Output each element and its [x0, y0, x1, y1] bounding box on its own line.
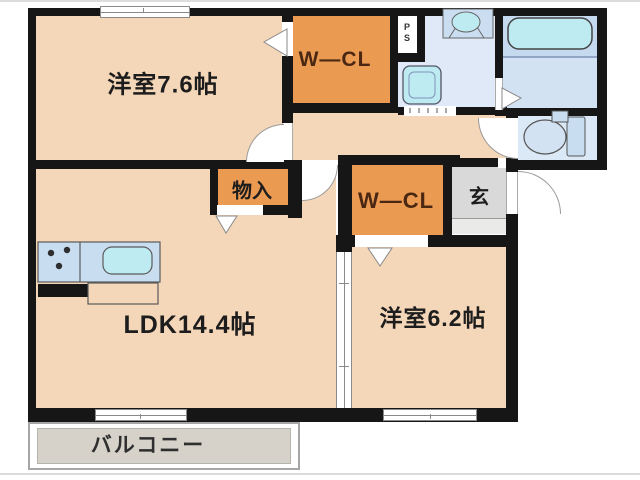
- bedroom2-window: [383, 409, 477, 421]
- wcl2-opening: [355, 235, 428, 247]
- window-midline: [101, 12, 189, 13]
- storage-opening: [217, 205, 263, 215]
- wall-wcl2-top: [338, 155, 460, 165]
- bedroom2-label: 洋室6.2帖: [380, 299, 487, 333]
- sliding-door-midline: [344, 252, 345, 408]
- wall-divider-top: [336, 235, 352, 252]
- genkan-step: [452, 218, 506, 234]
- wall-ps-bottom: [390, 53, 425, 62]
- corridor-floor: [293, 108, 506, 160]
- sliding-door-tick: [339, 283, 349, 284]
- toilet-floor: [518, 112, 597, 160]
- bedroom1-label: 洋室7.6帖: [107, 65, 218, 100]
- wcl1-opening: [282, 22, 293, 56]
- ps-label: PS: [402, 22, 412, 44]
- wall-left: [28, 8, 36, 422]
- wall-bedroom1-bottom: [28, 160, 220, 169]
- sliding-door-tick: [339, 366, 349, 367]
- entrance-door-leaf: [506, 172, 518, 214]
- image-bottom-edge: [0, 473, 640, 475]
- ldk-window: [95, 409, 187, 421]
- wall-bedroom1-right-a: [282, 8, 293, 22]
- genkan-label: 玄: [469, 181, 489, 210]
- bedroom1-window: [100, 6, 190, 18]
- genkan-corridor-opening: [498, 158, 506, 168]
- floor-plan: 洋室7.6帖 W―CL PS 物入 W―CL 玄 LDK14.4帖 洋室6.2帖…: [0, 0, 640, 480]
- ldk-bedroom2-sliding-door: [336, 252, 352, 408]
- wcl2-label: W―CL: [358, 188, 434, 214]
- kitchen-wall-stub: [38, 284, 88, 297]
- window-tick: [143, 8, 144, 13]
- bathroom-tub-deck: [503, 16, 597, 57]
- entrance-door-swing: [518, 171, 561, 214]
- window-midline: [96, 415, 186, 416]
- balcony-label: バルコニー: [91, 429, 206, 459]
- wall-wcl2-left: [338, 155, 352, 247]
- bathroom-door-leaf: [495, 78, 503, 110]
- image-top-edge: [0, 0, 640, 2]
- window-tick: [430, 414, 431, 419]
- wall-right-upper: [597, 8, 607, 170]
- ldk-label: LDK14.4帖: [123, 305, 256, 341]
- storage-label: 物入: [232, 175, 272, 204]
- washroom-door-band: [404, 106, 456, 116]
- wall-wcl2-right: [443, 155, 452, 245]
- window-tick: [140, 414, 141, 419]
- wcl1-label: W―CL: [299, 48, 372, 72]
- wall-genkan-top: [450, 158, 498, 167]
- wall-wcl1-bottom: [282, 103, 398, 113]
- wall-toilet-bottom: [506, 160, 607, 170]
